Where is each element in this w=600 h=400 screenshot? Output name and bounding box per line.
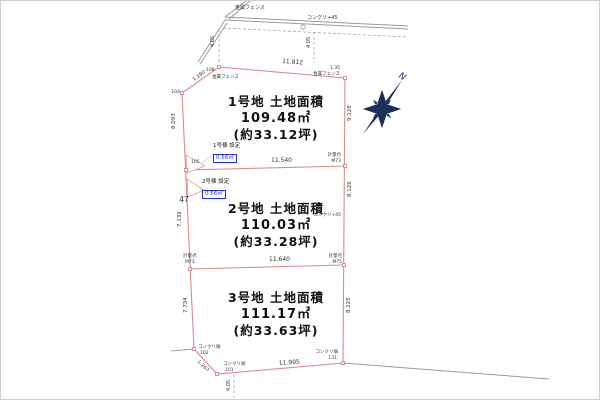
plot-2-area: 110.03㎡ [186, 218, 366, 235]
point-label: M75 [332, 259, 342, 265]
dim-label: 7.132 [177, 211, 183, 227]
plot-2-area-label: 2号地 土地面積 110.03㎡ (約33.28坪) [186, 201, 366, 251]
point-label: 131 [328, 355, 337, 361]
setback-2-label: 2号棟 設定 [202, 179, 229, 186]
point-label: 計量点 [183, 252, 197, 259]
survey-drawing-page: N 金属フェンスコンクリ+454.054.0511.812108金属フェンス1.… [0, 0, 600, 400]
plot-2-tsubo: (約33.28坪) [186, 234, 366, 251]
plot-1-title: 1号地 土地面積 [186, 94, 366, 111]
dim-label: 11.640 [269, 256, 290, 263]
dim-label: 8.126 [347, 181, 353, 197]
setback-1-value: 0.56㎡ [213, 154, 237, 163]
dim-label: 4.05 [306, 37, 312, 48]
dim-label: 1.267 [196, 359, 210, 373]
setback-note-2: 2号棟 設定 0.56㎡ [202, 179, 229, 199]
plot-1-tsubo: (約33.12坪) [186, 127, 366, 144]
plot-2-title: 2号地 土地面積 [186, 201, 366, 218]
fence-label-top: 金属フェンス [235, 4, 265, 11]
point-label: 102 [200, 350, 209, 356]
dim-label: 1.35 [330, 65, 340, 71]
road-marker-circle [301, 25, 305, 29]
plot-1-area: 109.48㎡ [186, 111, 366, 128]
dim-label: 11.995 [279, 359, 301, 367]
point-label: 108 [206, 67, 215, 73]
road-mark-label: コンクリ+45 [307, 15, 338, 21]
plot-3-area: 111.17㎡ [186, 307, 366, 324]
point-label: 101 [225, 367, 234, 373]
point-label: 105 [191, 159, 200, 165]
dim-label: 11.540 [271, 157, 292, 164]
fence-label: 金属フェンス [212, 73, 239, 80]
plot-1-area-label: 1号地 土地面積 109.48㎡ (約33.12坪) [186, 94, 366, 144]
compass-rose: N [362, 71, 408, 134]
divider-plot1-plot2 [186, 166, 345, 170]
point-label: M73 [331, 158, 341, 164]
divider-plot2-plot3 [190, 265, 344, 269]
fence-label: 金属フェンス [313, 70, 340, 77]
north-label: N [396, 71, 407, 83]
setback-2-value: 0.56㎡ [202, 190, 226, 199]
dim-label: 4.05 [210, 36, 216, 47]
dim-label: 11.812 [282, 58, 304, 66]
dim-label: 4.05 [226, 380, 232, 391]
setback-note-1: 1号棟 設定 0.56㎡ [213, 143, 240, 163]
wall-label: コンクリ塀 [316, 348, 339, 355]
point-label: 計量点 [328, 151, 342, 158]
point-label: M73 [185, 259, 195, 265]
plot-3-area-label: 3号地 土地面積 111.17㎡ (約33.63坪) [186, 290, 366, 340]
plot-3-title: 3号地 土地面積 [186, 290, 366, 307]
dim-label: 8.093 [171, 113, 177, 129]
setback-1-label: 1号棟 設定 [213, 143, 240, 150]
wall-label: コンクリ塀 [223, 360, 246, 367]
point-label: 計量点 [329, 252, 343, 259]
point-label: 104 [171, 89, 180, 95]
wall-label: コンクリ塀 [198, 343, 221, 350]
plot-3-tsubo: (約33.63坪) [186, 323, 366, 340]
